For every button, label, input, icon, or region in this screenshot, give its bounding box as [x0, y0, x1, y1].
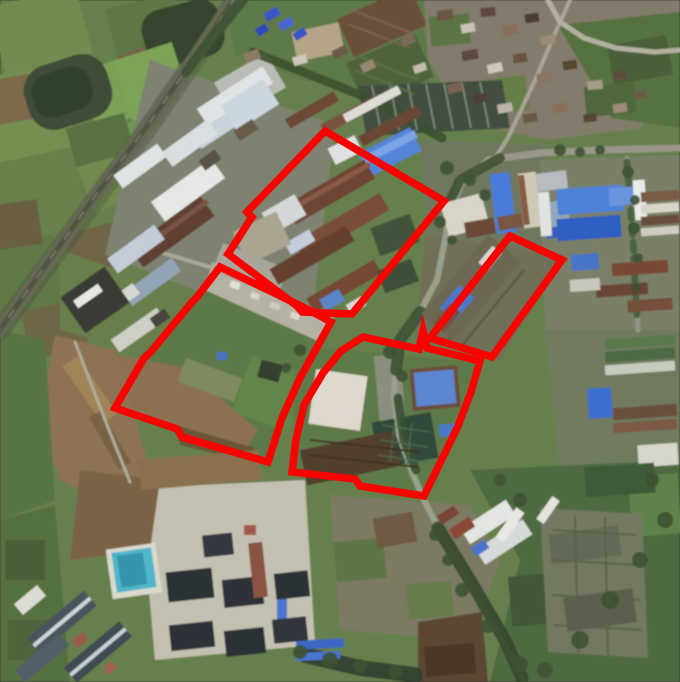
map-viewport [0, 0, 680, 682]
satellite-map-image[interactable] [0, 0, 680, 682]
terrain-layer [0, 0, 680, 682]
